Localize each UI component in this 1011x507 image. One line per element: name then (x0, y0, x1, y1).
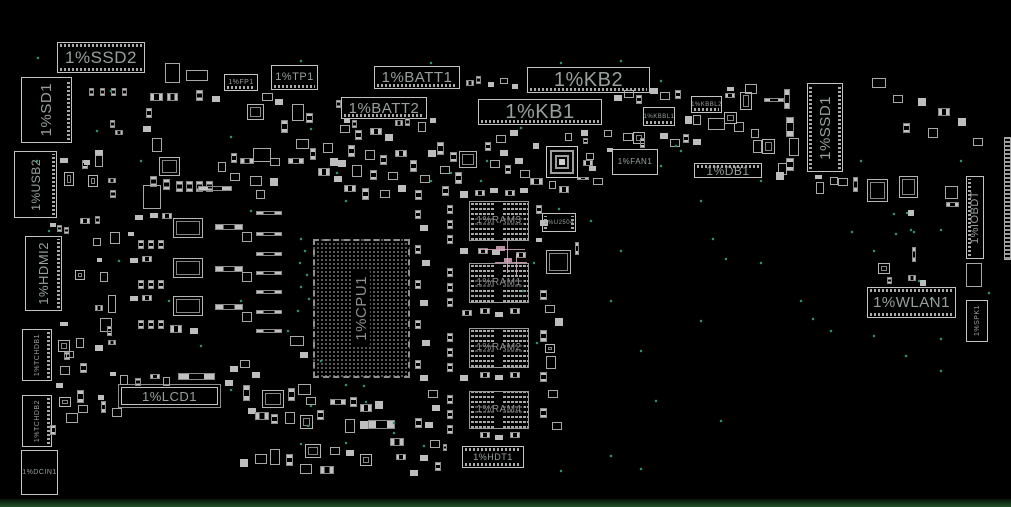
chip-2pad-vertical[interactable] (110, 190, 116, 198)
solder-pad[interactable] (230, 366, 238, 372)
chip-2pad-vertical[interactable] (89, 88, 94, 96)
component-outline[interactable] (928, 128, 938, 138)
chip-2pad-vertical[interactable] (158, 320, 164, 329)
chip-2pad-vertical[interactable] (146, 108, 152, 118)
component-outline[interactable] (285, 412, 295, 424)
component-ssd1[interactable]: 1%SSD1 (807, 83, 843, 172)
chip-2pad-horizontal[interactable] (215, 304, 243, 310)
component-lcd1[interactable]: 1%LCD1 (121, 387, 218, 405)
solder-pad[interactable] (660, 133, 668, 139)
component-outline[interactable] (745, 84, 757, 94)
component-sd1[interactable]: 1%SD1 (21, 77, 72, 143)
chip-2pad-vertical[interactable] (336, 100, 341, 108)
solder-pad[interactable] (536, 238, 542, 242)
chip-2pad-vertical[interactable] (110, 120, 115, 128)
component-iobdt[interactable]: 1%IOBDT (966, 176, 984, 259)
chip-2pad-vertical[interactable] (148, 240, 154, 249)
component-outline[interactable] (186, 70, 208, 81)
chip-2pad-horizontal[interactable] (80, 218, 90, 224)
component-outline[interactable] (60, 366, 70, 375)
solder-pad[interactable] (84, 160, 90, 165)
component-outline[interactable] (623, 133, 633, 141)
component-outline[interactable] (66, 413, 78, 423)
chip-2pad-vertical[interactable] (784, 89, 790, 109)
chip-2pad-vertical[interactable] (306, 113, 313, 123)
chip-2pad-vertical[interactable] (370, 170, 377, 180)
solder-pad[interactable] (344, 118, 350, 123)
chip-2pad-horizontal[interactable] (360, 404, 372, 412)
solder-pad[interactable] (56, 383, 63, 388)
qfn-chip[interactable] (173, 258, 203, 278)
chip-2pad-vertical[interactable] (640, 138, 645, 148)
component-outline[interactable] (112, 408, 122, 417)
chip-2pad-vertical[interactable] (540, 330, 547, 342)
qfn-chip[interactable] (59, 397, 71, 407)
component-outline[interactable] (250, 176, 262, 186)
component-usb2[interactable]: 1%USB2 (14, 151, 57, 218)
chip-2pad-horizontal[interactable] (318, 168, 330, 176)
chip-2pad-vertical[interactable] (163, 179, 170, 190)
solder-pad[interactable] (275, 99, 283, 105)
chip-2pad-horizontal[interactable] (256, 310, 282, 314)
component-ram4[interactable]: 1%RAM4 (469, 391, 529, 429)
chip-2pad-horizontal[interactable] (938, 108, 950, 116)
component-outline[interactable] (789, 138, 799, 156)
chip-2pad-horizontal[interactable] (395, 120, 403, 126)
component-outline[interactable] (496, 135, 506, 143)
component-outline[interactable] (66, 351, 74, 358)
component-outline[interactable] (330, 447, 340, 455)
chip-2pad-vertical[interactable] (310, 148, 316, 160)
chip-2pad-horizontal[interactable] (240, 158, 254, 164)
solder-pad[interactable] (500, 150, 508, 156)
solder-pad[interactable] (918, 98, 926, 106)
solder-pad[interactable] (589, 166, 596, 171)
solder-pad[interactable] (515, 158, 523, 164)
chip-2pad-horizontal[interactable] (215, 224, 243, 230)
chip-2pad-vertical[interactable] (410, 160, 417, 172)
solder-pad[interactable] (420, 375, 428, 381)
solder-pad[interactable] (330, 158, 338, 166)
chip-2pad-horizontal[interactable] (198, 186, 232, 191)
chip-2pad-vertical[interactable] (447, 333, 453, 342)
solder-pad[interactable] (512, 84, 518, 89)
chip-2pad-horizontal[interactable] (108, 340, 116, 345)
chip-2pad-vertical[interactable] (281, 120, 288, 133)
solder-pad[interactable] (240, 459, 248, 467)
chip-2pad-horizontal[interactable] (115, 130, 123, 135)
component-outline[interactable] (830, 177, 838, 185)
component-tchdb2[interactable]: 1%TCHDB2 (22, 395, 52, 447)
edge-connector[interactable] (1004, 137, 1011, 260)
chip-2pad-horizontal[interactable] (344, 185, 356, 192)
solder-pad[interactable] (95, 345, 103, 351)
chip-2pad-vertical[interactable] (636, 95, 642, 104)
qfn-chip[interactable] (75, 270, 85, 280)
component-batt1[interactable]: 1%BATT1 (374, 66, 460, 89)
chip-2pad-horizontal[interactable] (390, 438, 404, 446)
chip-2pad-vertical[interactable] (176, 181, 183, 192)
component-outline[interactable] (110, 232, 120, 244)
solder-pad[interactable] (150, 213, 158, 218)
chip-2pad-vertical[interactable] (148, 320, 154, 329)
component-outline[interactable] (345, 419, 355, 433)
qfn-chip[interactable] (867, 179, 888, 202)
chip-2pad-vertical[interactable] (138, 320, 144, 329)
chip-2pad-vertical[interactable] (476, 76, 481, 84)
solder-pad[interactable] (334, 176, 342, 182)
component-outline[interactable] (816, 182, 824, 194)
chip-2pad-horizontal[interactable] (108, 178, 116, 183)
chip-2pad-horizontal[interactable] (908, 275, 916, 281)
component-outline[interactable] (93, 238, 101, 246)
qfn-chip[interactable] (173, 218, 203, 238)
chip-2pad-vertical[interactable] (485, 142, 491, 151)
component-hdt1[interactable]: 1%HDT1 (462, 446, 524, 468)
chip-2pad-vertical[interactable] (415, 320, 421, 329)
component-cpu1[interactable]: 1%CPU1 (313, 239, 410, 378)
chip-2pad-vertical[interactable] (455, 172, 462, 184)
component-outline[interactable] (500, 78, 508, 84)
component-outline[interactable] (548, 390, 558, 398)
chip-2pad-horizontal[interactable] (170, 325, 182, 333)
chip-2pad-vertical[interactable] (442, 186, 449, 196)
solder-pad[interactable] (422, 340, 430, 346)
chip-2pad-horizontal[interactable] (395, 150, 407, 157)
component-outline[interactable] (306, 397, 316, 405)
solder-pad[interactable] (490, 188, 498, 193)
solder-pad[interactable] (495, 375, 503, 380)
solder-pad[interactable] (520, 188, 528, 193)
qfn-chip[interactable] (878, 263, 890, 274)
qfn-chip[interactable] (159, 157, 180, 176)
component-kbbl2[interactable]: 1%KBBL2 (691, 96, 722, 113)
component-outline[interactable] (586, 153, 594, 160)
chip-2pad-vertical[interactable] (77, 390, 84, 403)
chip-2pad-horizontal[interactable] (142, 256, 152, 262)
component-outline[interactable] (440, 166, 450, 174)
component-outline[interactable] (165, 63, 180, 83)
component-outline[interactable] (120, 375, 128, 385)
chip-2pad-vertical[interactable] (415, 280, 421, 289)
chip-2pad-horizontal[interactable] (256, 232, 282, 236)
component-outline[interactable] (751, 129, 759, 138)
solder-pad[interactable] (338, 160, 346, 167)
chip-2pad-vertical[interactable] (196, 90, 203, 101)
chip-2pad-vertical[interactable] (148, 280, 154, 289)
chip-2pad-vertical[interactable] (158, 240, 164, 249)
chip-2pad-vertical[interactable] (853, 177, 858, 192)
solder-pad[interactable] (225, 380, 233, 386)
chip-2pad-vertical[interactable] (912, 247, 916, 262)
chip-2pad-vertical[interactable] (271, 414, 278, 424)
component-outline[interactable] (565, 133, 572, 141)
chip-2pad-vertical[interactable] (447, 395, 453, 404)
chip-2pad-horizontal[interactable] (256, 211, 282, 215)
solder-pad[interactable] (410, 470, 418, 476)
qfn-chip[interactable] (262, 390, 284, 408)
chip-2pad-vertical[interactable] (437, 142, 444, 155)
chip-2pad-horizontal[interactable] (466, 80, 474, 86)
component-ssd2[interactable]: 1%SSD2 (57, 42, 145, 73)
chip-2pad-horizontal[interactable] (256, 329, 282, 333)
solder-pad[interactable] (650, 88, 658, 94)
component-outline[interactable] (420, 175, 430, 183)
component-outline[interactable] (256, 190, 265, 199)
chip-2pad-vertical[interactable] (450, 152, 457, 162)
solder-pad[interactable] (488, 82, 494, 87)
chip-2pad-vertical[interactable] (405, 118, 410, 126)
solder-pad[interactable] (727, 87, 734, 91)
component-outline[interactable] (78, 405, 88, 413)
chip-2pad-vertical[interactable] (415, 360, 421, 369)
qfn-chip[interactable] (546, 250, 571, 274)
chip-2pad-vertical[interactable] (447, 205, 453, 214)
chip-2pad-horizontal[interactable] (288, 158, 304, 164)
chip-2pad-vertical[interactable] (57, 225, 62, 232)
component-outline[interactable] (100, 272, 108, 282)
solder-pad[interactable] (776, 172, 784, 180)
chip-2pad-vertical[interactable] (786, 158, 794, 171)
chip-2pad-vertical[interactable] (415, 245, 421, 254)
solder-pad[interactable] (815, 175, 822, 179)
component-wlan1[interactable]: 1%WLAN1 (867, 287, 956, 318)
chip-2pad-vertical[interactable] (101, 401, 106, 413)
component-outline[interactable] (945, 186, 958, 199)
chip-2pad-horizontal[interactable] (462, 310, 472, 316)
component-outline[interactable] (270, 449, 280, 465)
solder-pad[interactable] (422, 260, 430, 266)
chip-2pad-horizontal[interactable] (256, 290, 282, 294)
component-outline[interactable] (893, 95, 903, 103)
component-outline[interactable] (552, 422, 562, 430)
component-outline[interactable] (838, 178, 848, 186)
solder-pad[interactable] (212, 96, 220, 102)
solder-pad[interactable] (581, 130, 588, 136)
chip-2pad-vertical[interactable] (107, 326, 112, 336)
component-outline[interactable] (520, 170, 530, 178)
qfn-chip[interactable] (545, 344, 555, 353)
chip-2pad-vertical[interactable] (675, 90, 681, 99)
component-outline[interactable] (242, 272, 252, 282)
solder-pad[interactable] (420, 300, 428, 306)
component-outline[interactable] (255, 454, 267, 464)
solder-pad[interactable] (460, 248, 468, 254)
chip-2pad-vertical[interactable] (447, 298, 453, 307)
solder-pad[interactable] (555, 318, 563, 326)
chip-2pad-horizontal[interactable] (577, 177, 589, 180)
solder-pad[interactable] (128, 232, 134, 236)
chip-2pad-horizontal[interactable] (142, 295, 152, 301)
solder-pad[interactable] (495, 312, 503, 317)
component-outline[interactable] (292, 104, 304, 121)
component-outline[interactable] (95, 155, 103, 167)
solder-pad[interactable] (110, 372, 116, 376)
component-outline[interactable] (365, 150, 375, 160)
component-outline[interactable] (290, 336, 304, 346)
component-outline[interactable] (323, 143, 333, 153)
component-outline[interactable] (753, 140, 762, 153)
qfn-chip[interactable] (762, 139, 775, 154)
solder-pad[interactable] (346, 450, 354, 456)
chip-2pad-vertical[interactable] (415, 190, 422, 200)
component-outline[interactable] (108, 295, 116, 313)
solder-pad[interactable] (920, 280, 926, 286)
chip-2pad-vertical[interactable] (288, 388, 295, 401)
solder-pad[interactable] (190, 328, 198, 334)
chip-2pad-horizontal[interactable] (510, 372, 520, 378)
solder-pad[interactable] (685, 116, 692, 124)
component-outline[interactable] (352, 165, 362, 177)
chip-2pad-vertical[interactable] (135, 378, 141, 386)
component-outline[interactable] (240, 360, 250, 368)
solder-pad[interactable] (360, 421, 368, 429)
component-outline[interactable] (152, 138, 162, 152)
chip-2pad-vertical[interactable] (786, 117, 794, 137)
solder-pad[interactable] (375, 401, 383, 409)
chip-2pad-vertical[interactable] (443, 444, 447, 451)
solder-pad[interactable] (495, 435, 503, 440)
chip-2pad-horizontal[interactable] (370, 128, 382, 135)
solder-pad[interactable] (97, 258, 102, 262)
component-db1[interactable]: 1%DB1 (694, 163, 762, 178)
component-outline[interactable] (143, 185, 161, 209)
component-hdmi2[interactable]: 1%HDMI2 (25, 236, 62, 311)
chip-2pad-vertical[interactable] (540, 290, 547, 300)
chip-2pad-horizontal[interactable] (530, 178, 543, 185)
component-outline[interactable] (262, 93, 273, 101)
chip-2pad-vertical[interactable] (683, 134, 689, 143)
chip-2pad-horizontal[interactable] (946, 202, 959, 207)
component-outline[interactable] (973, 138, 983, 146)
component-outline[interactable] (546, 356, 556, 369)
chip-2pad-horizontal[interactable] (725, 93, 735, 98)
qfn-chip[interactable] (173, 296, 203, 316)
component-outline[interactable] (593, 178, 603, 185)
chip-2pad-horizontal[interactable] (516, 252, 526, 258)
solder-pad[interactable] (460, 375, 468, 381)
component-outline[interactable] (545, 305, 555, 313)
chip-2pad-vertical[interactable] (348, 145, 355, 157)
chip-2pad-vertical[interactable] (447, 363, 453, 372)
component-kb1[interactable]: 1%KB1 (478, 99, 602, 125)
chip-2pad-vertical[interactable] (887, 277, 892, 284)
chip-2pad-vertical[interactable] (64, 227, 69, 234)
chip-2pad-vertical[interactable] (540, 372, 547, 382)
solder-pad[interactable] (130, 296, 138, 301)
chip-2pad-horizontal[interactable] (330, 399, 346, 405)
qfn-concentric-chip[interactable] (546, 146, 578, 178)
component-ram3[interactable]: 1%RAM3 (469, 201, 529, 241)
solder-pad[interactable] (300, 352, 308, 358)
component-outline[interactable] (872, 78, 886, 88)
component-outline[interactable] (163, 377, 170, 386)
solder-pad[interactable] (428, 150, 436, 157)
component-outline[interactable] (418, 122, 426, 132)
component-outline[interactable] (218, 162, 226, 172)
chip-2pad-vertical[interactable] (352, 120, 357, 128)
chip-2pad-horizontal[interactable] (150, 374, 160, 379)
solder-pad[interactable] (143, 126, 151, 132)
chip-2pad-vertical[interactable] (231, 153, 237, 163)
solder-pad[interactable] (270, 178, 278, 186)
component-outline[interactable] (604, 130, 612, 137)
component-outline[interactable] (296, 139, 309, 149)
chip-2pad-horizontal[interactable] (95, 305, 103, 311)
component-outline[interactable] (624, 90, 634, 98)
chip-2pad-horizontal[interactable] (255, 412, 269, 420)
qfn-chip[interactable] (724, 112, 737, 124)
component-outline[interactable] (380, 190, 390, 198)
chip-2pad-vertical[interactable] (447, 283, 453, 292)
chip-2pad-horizontal[interactable] (368, 420, 395, 429)
solder-pad[interactable] (908, 210, 914, 216)
chip-2pad-vertical[interactable] (362, 188, 369, 200)
chip-2pad-vertical[interactable] (317, 410, 324, 420)
component-outline[interactable] (242, 232, 252, 242)
chip-2pad-vertical[interactable] (575, 242, 579, 255)
chip-2pad-vertical[interactable] (415, 418, 422, 428)
component-outline[interactable] (230, 173, 240, 181)
chip-2pad-horizontal[interactable] (162, 213, 172, 219)
component-outline[interactable] (428, 390, 438, 398)
solder-pad[interactable] (958, 118, 966, 126)
solder-pad[interactable] (252, 372, 260, 378)
component-outline[interactable] (270, 158, 280, 166)
chip-2pad-vertical[interactable] (415, 210, 421, 219)
chip-2pad-horizontal[interactable] (167, 93, 178, 101)
component-tchdb1[interactable]: 1%TCHDB1 (22, 329, 52, 381)
chip-2pad-vertical[interactable] (447, 268, 453, 277)
chip-2pad-vertical[interactable] (80, 363, 87, 373)
solder-pad[interactable] (420, 225, 428, 231)
chip-2pad-horizontal[interactable] (320, 466, 334, 474)
chip-2pad-horizontal[interactable] (475, 190, 485, 196)
chip-2pad-horizontal[interactable] (256, 252, 282, 256)
chip-2pad-vertical[interactable] (243, 385, 250, 401)
chip-2pad-horizontal[interactable] (510, 308, 520, 314)
component-fp1[interactable]: 1%FP1 (224, 74, 258, 91)
component-ram2[interactable]: 1%RAM2 (469, 328, 529, 368)
chip-2pad-horizontal[interactable] (559, 186, 569, 193)
component-outline[interactable] (242, 312, 252, 322)
chip-2pad-vertical[interactable] (355, 130, 362, 140)
chip-2pad-vertical[interactable] (536, 205, 542, 214)
chip-2pad-vertical[interactable] (138, 240, 144, 249)
chip-2pad-horizontal[interactable] (480, 432, 490, 438)
component-outline[interactable] (966, 263, 982, 287)
chip-2pad-vertical[interactable] (286, 454, 293, 466)
chip-2pad-vertical[interactable] (350, 397, 357, 407)
chip-2pad-vertical[interactable] (583, 138, 588, 144)
component-outline[interactable] (430, 440, 440, 448)
component-spk1[interactable]: 1%SPK1 (966, 300, 988, 342)
component-outline[interactable] (76, 338, 84, 348)
chip-2pad-vertical[interactable] (447, 220, 453, 229)
chip-2pad-vertical[interactable] (447, 235, 453, 244)
qfn-chip[interactable] (305, 444, 321, 458)
component-outline[interactable] (490, 160, 500, 168)
solder-pad[interactable] (60, 158, 68, 163)
solder-pad[interactable] (614, 95, 622, 101)
component-kbbl1[interactable]: 1%KBBL1 (643, 107, 675, 126)
solder-pad[interactable] (98, 395, 104, 400)
chip-2pad-horizontal[interactable] (150, 93, 163, 101)
chip-2pad-vertical[interactable] (447, 425, 453, 434)
component-dcin1[interactable]: 1%DCIN1 (21, 450, 58, 495)
component-outline[interactable] (660, 92, 670, 100)
qfn-chip[interactable] (740, 92, 752, 110)
